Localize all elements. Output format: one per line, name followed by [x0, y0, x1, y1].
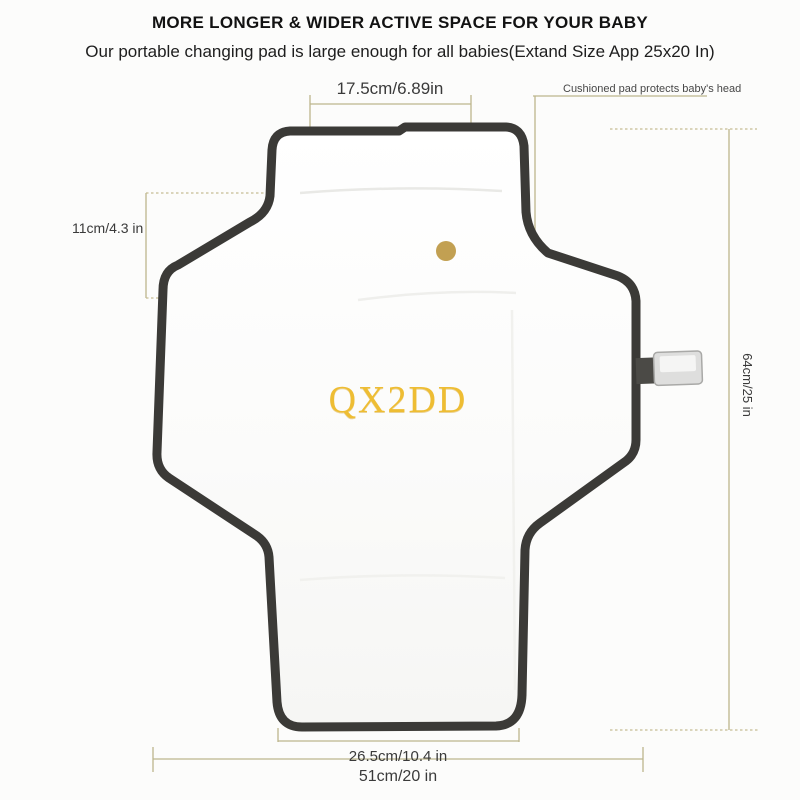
pad-outline	[157, 127, 636, 727]
head-note-label: Cushioned pad protects baby's head	[563, 83, 741, 95]
dimension-label-total-length: 64cm/25 in	[739, 330, 755, 440]
brand-watermark: QX2DD	[298, 378, 498, 422]
strap-buckle	[635, 351, 702, 386]
snap-button-dot	[436, 241, 456, 261]
dimension-label-total-width: 51cm/20 in	[298, 768, 498, 786]
dimension-label-pillow-width: 17.5cm/6.89in	[290, 79, 490, 99]
dimension-label-flap-height: 11cm/4.3 in	[72, 220, 143, 236]
dimension-label-bottom-width: 26.5cm/10.4 in	[298, 748, 498, 765]
buckle-highlight	[660, 355, 697, 372]
product-diagram-page: MORE LONGER & WIDER ACTIVE SPACE FOR YOU…	[0, 0, 800, 800]
